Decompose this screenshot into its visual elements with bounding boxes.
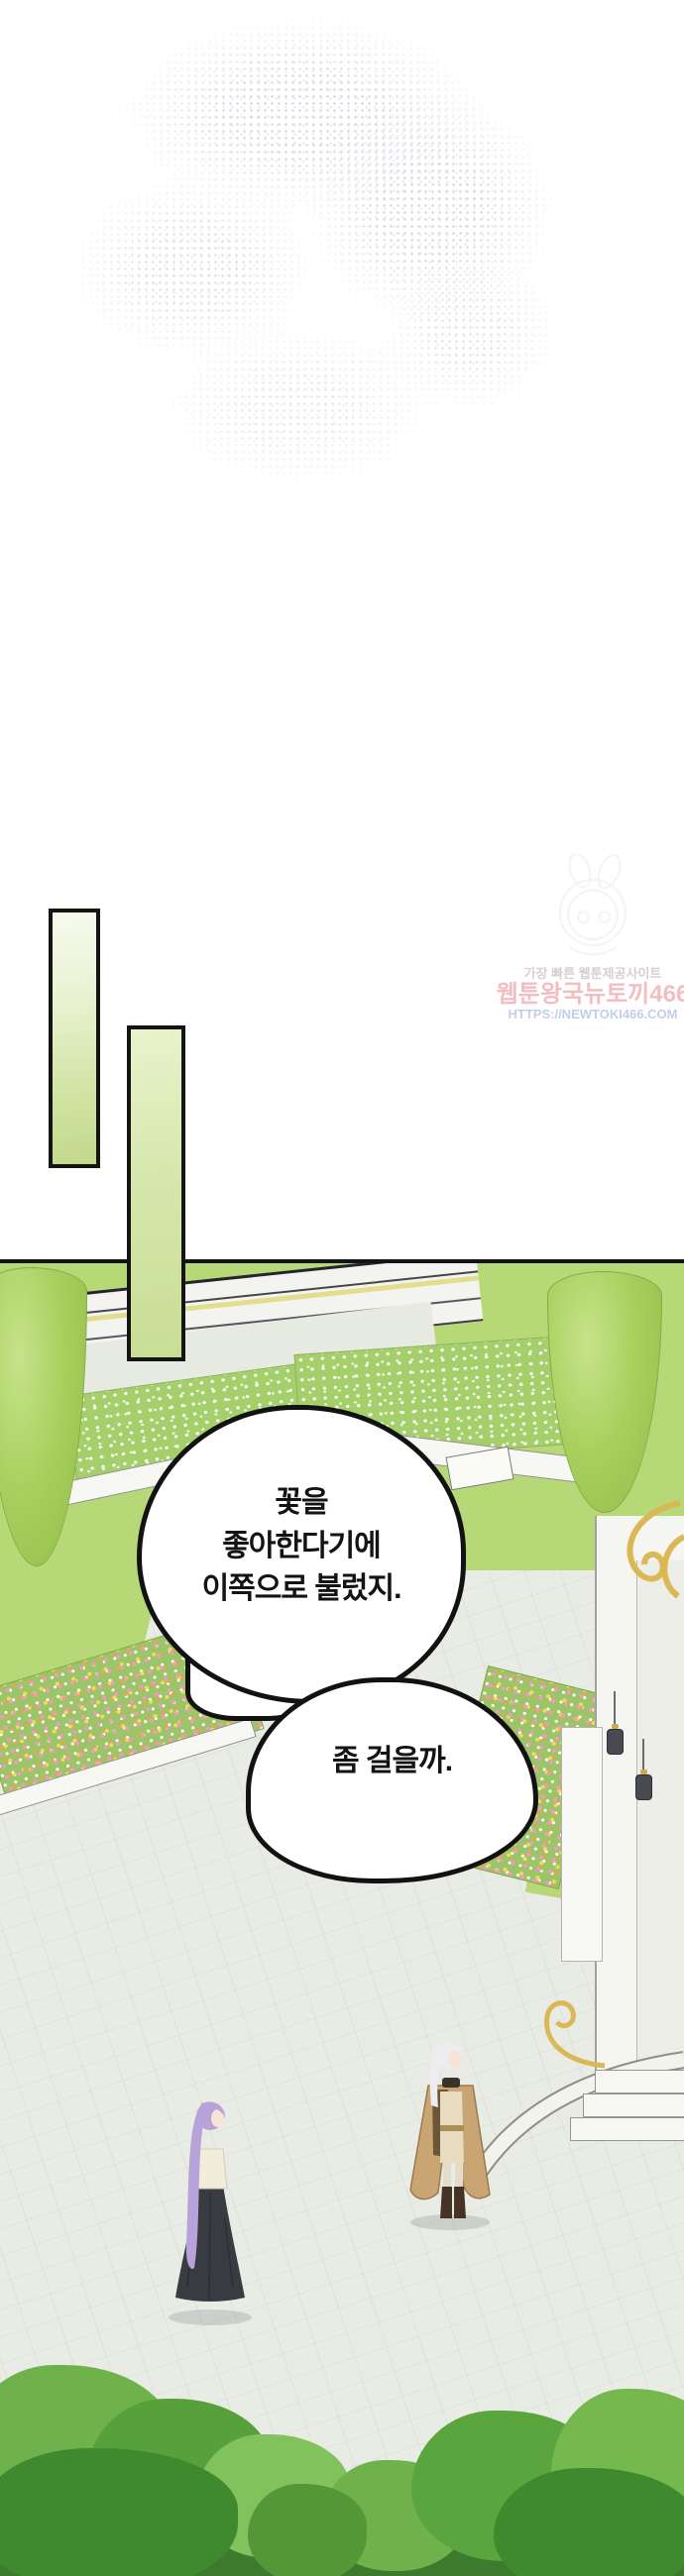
stair-step — [595, 2070, 684, 2093]
speech-text-1: 꽃을 좋아한다기에 이쪽으로 불렀지. — [142, 1410, 461, 1611]
pavilion-column — [561, 1727, 603, 1962]
bush — [494, 2468, 684, 2576]
gold-scroll-ornament-icon — [601, 1497, 684, 1616]
mascot-watermark-icon — [533, 854, 652, 965]
lantern-icon — [607, 1729, 624, 1755]
watermark-site-url: HTTPS://NEWTOKI466.COM — [494, 1008, 684, 1022]
watermark-tagline: 가장 빠른 웹툰제공사이트 — [494, 967, 684, 982]
garden-panel: 꽃을 좋아한다기에 이쪽으로 불렀지. 좀 걸을까. — [0, 1259, 684, 2576]
stair-step — [583, 2093, 684, 2117]
character-woman — [164, 2093, 258, 2326]
character-man — [399, 2038, 503, 2231]
speech-bubble-2: 좀 걸을까. — [246, 1677, 538, 1883]
lantern-icon — [635, 1774, 652, 1800]
speech-text-2: 좀 걸을까. — [251, 1682, 533, 1783]
panel-transition-bar-2 — [127, 1025, 185, 1361]
speech-bubble-1: 꽃을 좋아한다기에 이쪽으로 불렀지. — [137, 1405, 466, 1704]
site-watermark-mid: 가장 빠른 웹툰제공사이트 웹툰왕국뉴토끼466 HTTPS://NEWTOKI… — [494, 854, 684, 1022]
watermark-site-name: 웹툰왕국뉴토끼466 — [494, 982, 684, 1009]
cloud-texture — [377, 248, 565, 416]
bush — [248, 2484, 367, 2576]
pavilion-wall-inner — [636, 1560, 684, 2115]
stair-step — [570, 2117, 684, 2141]
panel-transition-bar-1 — [49, 909, 100, 1168]
webtoon-page: 가장 빠른 웹툰제공사이트 웹툰왕국뉴토끼466 HTTPS://NEWTOKI… — [0, 0, 684, 2576]
